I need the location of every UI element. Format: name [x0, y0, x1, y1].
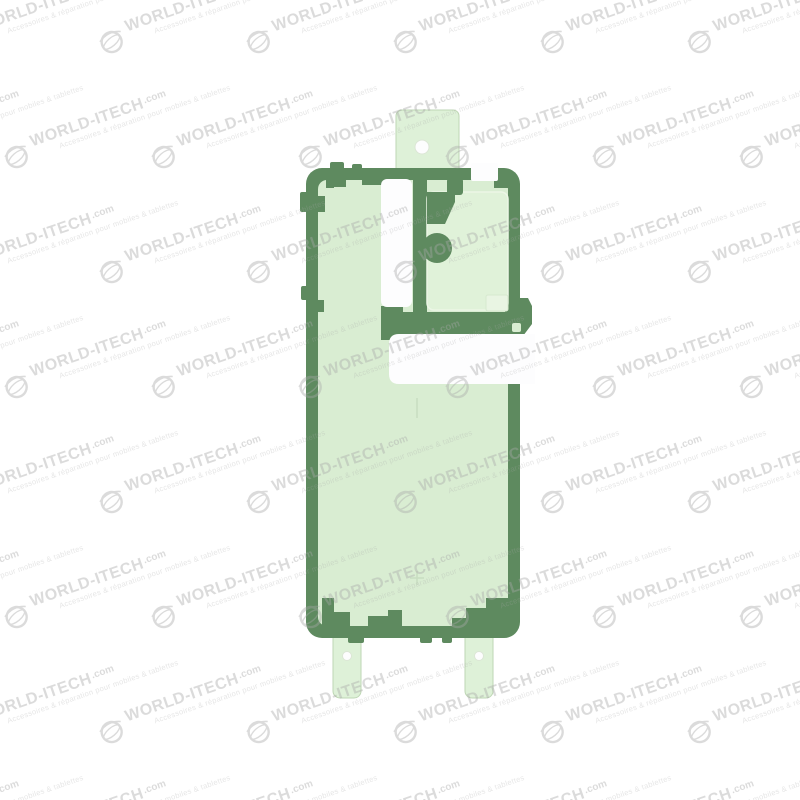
wing-notch — [512, 323, 521, 332]
bottom-left-tab-hole — [343, 652, 352, 661]
adhesive-sheet — [0, 0, 800, 800]
top-edge-notch — [471, 163, 498, 181]
camera-bottom-line — [398, 312, 508, 336]
right-cutout-band — [389, 334, 535, 384]
small-square-patch — [486, 295, 508, 311]
vertical-cutout-strip — [381, 179, 412, 307]
bottom-right-tab-hole — [475, 652, 484, 661]
camera-lens-cutout — [422, 233, 452, 263]
product-photo: WORLD-ITECH.com Accessoires & réparation… — [0, 0, 800, 800]
camera-top-notch — [447, 178, 463, 195]
top-tab-hole — [415, 140, 429, 154]
